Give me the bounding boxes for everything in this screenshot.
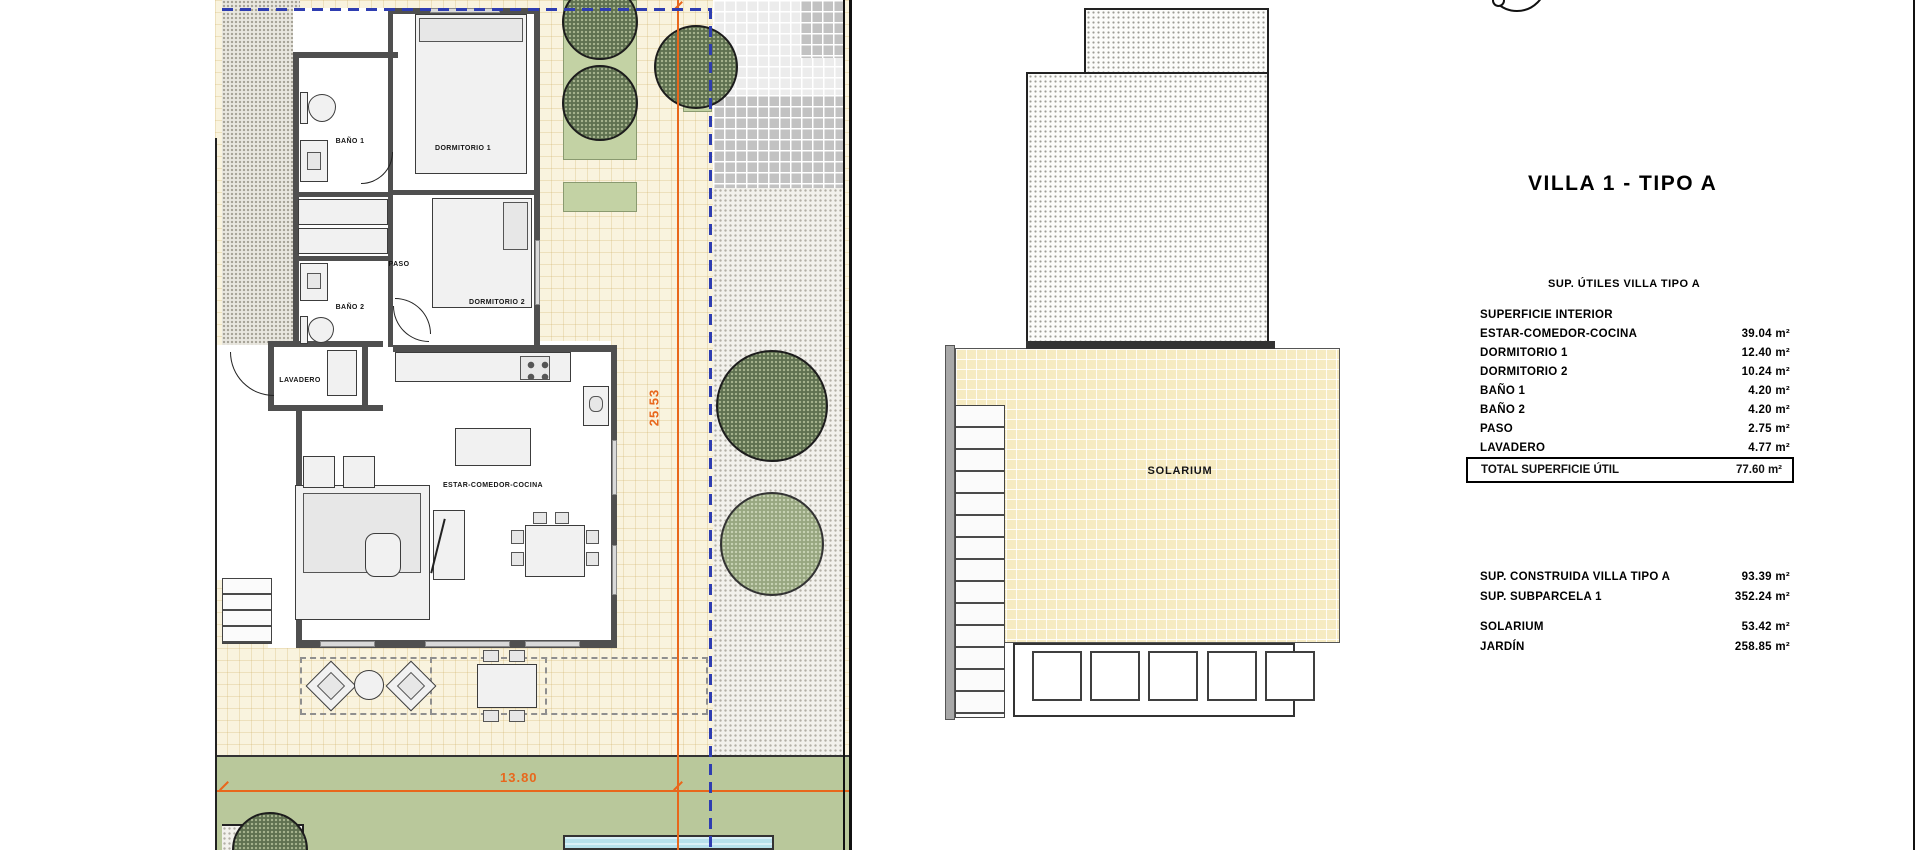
villa-parcel-plan: BAÑO 1 DORMITORIO 1 PASO BAÑO 2 DORMITOR…	[215, 0, 852, 850]
window	[612, 440, 617, 495]
solarium-plan: SOLARIUM	[935, 0, 1360, 730]
area-row: DORMITORIO 2 10.24 m²	[1480, 366, 1790, 381]
sofa-seat	[303, 493, 421, 573]
pergola-column	[1265, 651, 1315, 701]
total-value: 77.60 m²	[1736, 464, 1782, 476]
summary-label: SOLARIUM	[1480, 621, 1544, 636]
area-label: BAÑO 1	[1480, 385, 1525, 400]
tree	[716, 350, 828, 462]
area-value: 12.40 m²	[1742, 347, 1790, 362]
pergola-column	[1148, 651, 1198, 701]
driveway-tiles-dark	[713, 95, 845, 188]
area-value: 10.24 m²	[1742, 366, 1790, 381]
wall	[611, 345, 617, 648]
room-label-bano1: BAÑO 1	[310, 138, 390, 145]
tree	[720, 492, 824, 596]
area-label: DORMITORIO 2	[1480, 366, 1568, 381]
window	[612, 545, 617, 595]
armchair	[303, 456, 335, 488]
chair	[483, 650, 499, 662]
sink	[589, 396, 603, 412]
areas-section-header: SUPERFICIE INTERIOR	[1480, 309, 1790, 324]
architectural-sheet: BAÑO 1 DORMITORIO 1 PASO BAÑO 2 DORMITOR…	[0, 0, 1920, 850]
chair	[511, 530, 524, 544]
area-value: 4.20 m²	[1748, 404, 1790, 419]
swimming-pool	[563, 835, 774, 850]
summary-row: JARDÍN 258.85 m²	[1480, 641, 1790, 656]
roof-gravel-main	[1026, 72, 1269, 348]
room-label-bano2: BAÑO 2	[310, 304, 390, 311]
summary-value: 53.42 m²	[1742, 621, 1790, 636]
area-row: ESTAR-COMEDOR-COCINA 39.04 m²	[1480, 328, 1790, 343]
chair	[533, 512, 547, 524]
outdoor-table	[477, 664, 537, 708]
summary-row: SOLARIUM 53.42 m²	[1480, 621, 1790, 636]
summary-value: 352.24 m²	[1735, 591, 1790, 606]
toilet	[300, 92, 308, 124]
window	[425, 641, 510, 647]
solarium-stairs	[955, 405, 1005, 718]
chair	[555, 512, 569, 524]
parcel-boundary-dashed-top	[222, 8, 712, 11]
roof-gravel-top	[1084, 8, 1269, 76]
plot-boundary-right	[843, 0, 845, 850]
chair	[483, 710, 499, 722]
area-row: BAÑO 2 4.20 m²	[1480, 404, 1790, 419]
pergola-divider	[545, 657, 547, 715]
chair	[511, 552, 524, 566]
plot-boundary-left	[215, 138, 217, 850]
stove	[520, 356, 550, 380]
total-area-box: TOTAL SUPERFICIE ÚTIL 77.60 m²	[1466, 457, 1794, 483]
area-label: BAÑO 2	[1480, 404, 1525, 419]
summary-value: 93.39 m²	[1742, 571, 1790, 586]
pillow	[503, 202, 528, 250]
kitchen-island	[455, 428, 531, 466]
area-label: ESTAR-COMEDOR-COCINA	[1480, 328, 1637, 343]
pillow	[419, 18, 523, 42]
area-value: 2.75 m²	[1748, 423, 1790, 438]
dimension-depth-label: 25.53	[646, 389, 661, 427]
solarium-top-wall	[1026, 341, 1275, 349]
chair	[509, 710, 525, 722]
area-value: 39.04 m²	[1742, 328, 1790, 343]
driveway-tiles-dark	[800, 0, 845, 58]
dimension-line-horizontal	[215, 790, 852, 792]
plot-boundary-right-outer	[849, 0, 852, 850]
area-value: 4.77 m²	[1748, 442, 1790, 457]
plan-title: VILLA 1 - TIPO A	[1528, 172, 1717, 196]
solarium-deck	[955, 348, 1340, 643]
window	[535, 240, 540, 305]
area-label: PASO	[1480, 423, 1513, 438]
dimension-width-label: 13.80	[500, 770, 538, 785]
chair	[509, 650, 525, 662]
total-label: TOTAL SUPERFICIE ÚTIL	[1481, 464, 1619, 476]
washer	[327, 350, 357, 396]
planter-top-lower	[563, 182, 637, 212]
window	[525, 641, 580, 647]
summary-label: SUP. CONSTRUIDA VILLA TIPO A	[1480, 571, 1670, 586]
area-value: 4.20 m²	[1748, 385, 1790, 400]
wall	[388, 8, 393, 347]
area-row: PASO 2.75 m²	[1480, 423, 1790, 438]
shower	[298, 199, 388, 225]
sheet-border-right	[1913, 0, 1915, 850]
wall	[293, 192, 393, 197]
chair	[586, 530, 599, 544]
parcel-boundary-dashed-right	[709, 8, 712, 850]
toilet	[300, 316, 308, 344]
shower	[298, 228, 388, 254]
room-label-lavadero: LAVADERO	[260, 377, 340, 384]
dimension-line-vertical	[677, 0, 679, 850]
summary-label: JARDÍN	[1480, 641, 1525, 656]
wall	[293, 52, 398, 58]
room-label-paso: PASO	[369, 261, 429, 268]
wall	[393, 345, 617, 352]
room-label-estar: ESTAR-COMEDOR-COCINA	[423, 482, 563, 489]
pergola-column	[1207, 651, 1257, 701]
area-row: DORMITORIO 1 12.40 m²	[1480, 347, 1790, 362]
gravel-strip-right	[713, 188, 845, 757]
sink	[307, 152, 321, 170]
tree	[654, 25, 738, 109]
wall	[362, 341, 368, 411]
solarium-label: SOLARIUM	[1115, 465, 1245, 477]
terrace-edge-line	[215, 755, 852, 757]
tree	[562, 65, 638, 141]
solarium-left-wall	[945, 345, 955, 720]
sink	[307, 273, 321, 289]
area-label: LAVADERO	[1480, 442, 1545, 457]
armchair	[343, 456, 375, 488]
entry-stairs	[222, 578, 272, 644]
section-label: SUPERFICIE INTERIOR	[1480, 309, 1613, 324]
summary-label: SUP. SUBPARCELA 1	[1480, 591, 1602, 606]
area-row: BAÑO 1 4.20 m²	[1480, 385, 1790, 400]
areas-heading: SUP. ÚTILES VILLA TIPO A	[1548, 278, 1700, 290]
coffee-table	[365, 533, 401, 577]
summary-row: SUP. SUBPARCELA 1 352.24 m²	[1480, 591, 1790, 606]
area-label: DORMITORIO 1	[1480, 347, 1568, 362]
gravel-strip-left	[222, 0, 300, 345]
wall	[393, 190, 540, 195]
room-label-dorm1: DORMITORIO 1	[413, 145, 513, 152]
summary-row: SUP. CONSTRUIDA VILLA TIPO A 93.39 m²	[1480, 571, 1790, 586]
pergola-column	[1090, 651, 1140, 701]
window	[320, 641, 375, 647]
pergola-column	[1032, 651, 1082, 701]
dining-table	[525, 525, 585, 577]
chair	[586, 552, 599, 566]
side-table-round	[354, 670, 384, 700]
summary-value: 258.85 m²	[1735, 641, 1790, 656]
area-row: LAVADERO 4.77 m²	[1480, 442, 1790, 457]
room-label-dorm2: DORMITORIO 2	[447, 299, 547, 306]
